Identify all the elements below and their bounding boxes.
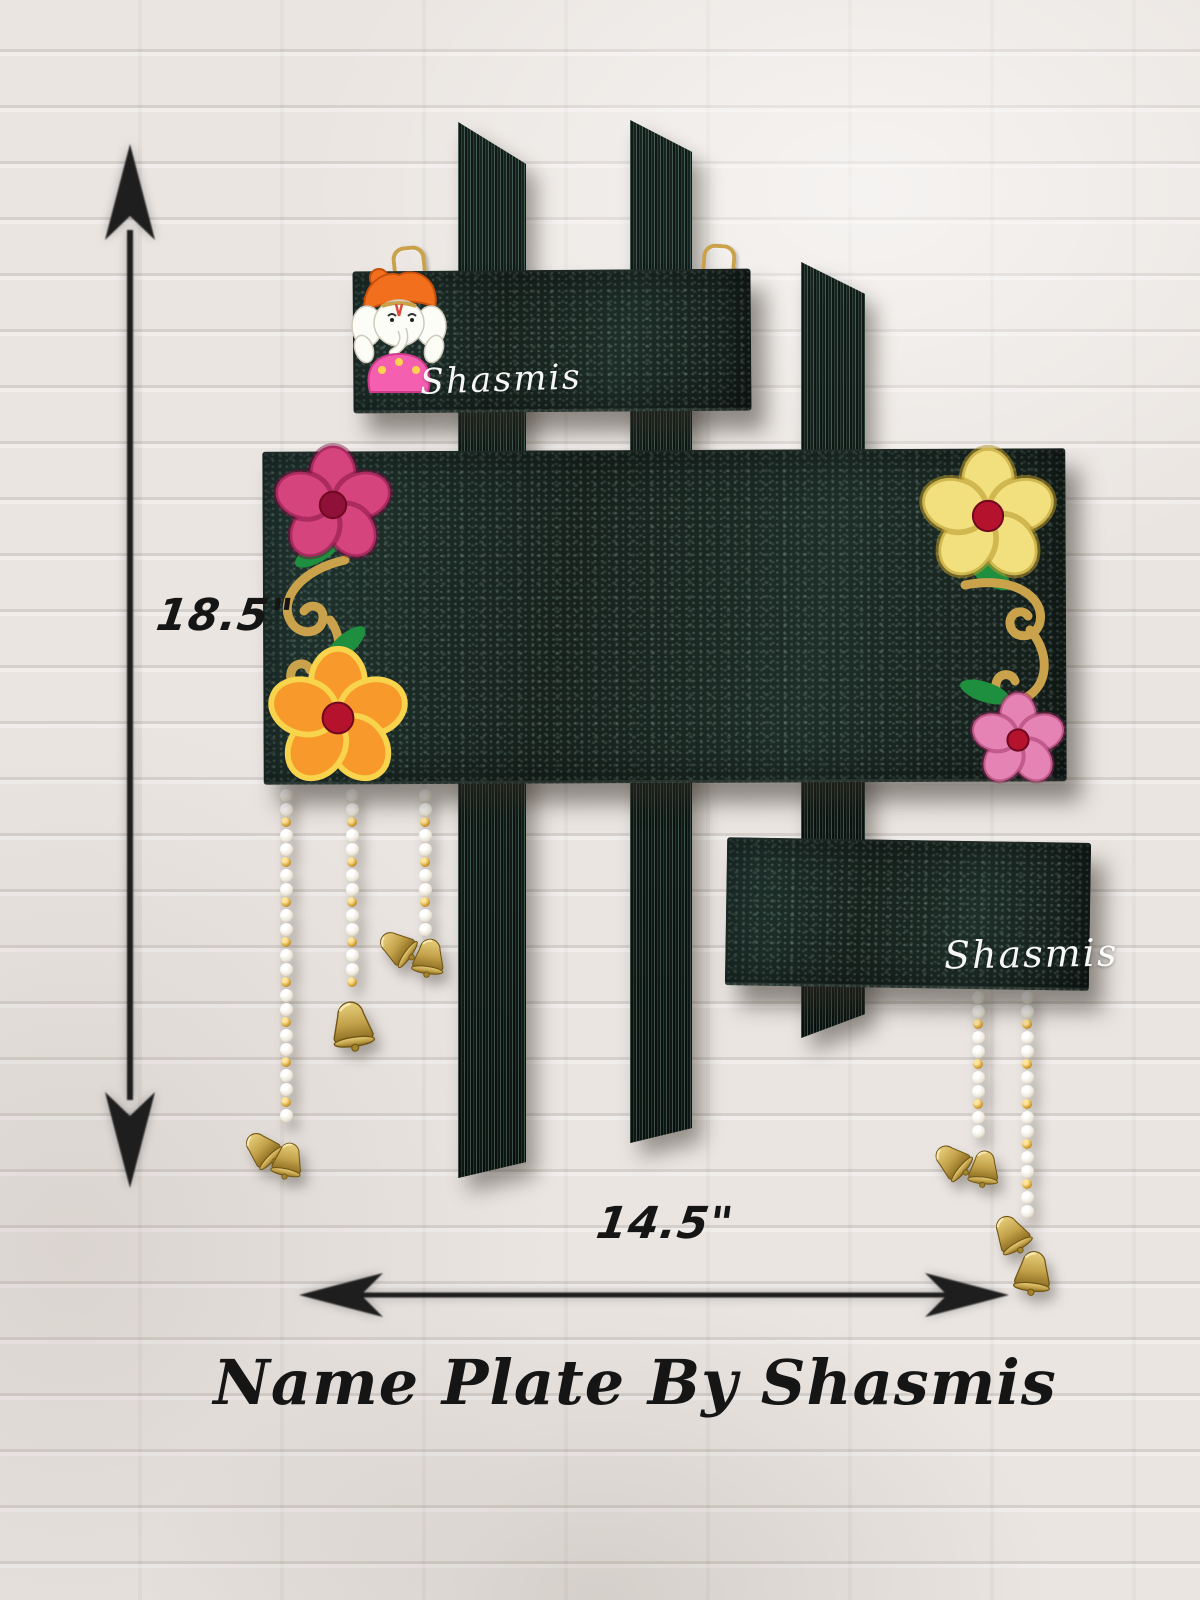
pearl-bead [346, 963, 359, 976]
pearl-bead [1021, 1005, 1034, 1018]
pearl-bead [280, 909, 293, 922]
pearl-bead [972, 1085, 985, 1098]
pearl-bead [346, 883, 359, 896]
pearl-bead [280, 803, 293, 816]
pearl-bead [1021, 1125, 1034, 1138]
gold-bead [281, 937, 291, 947]
brand-watermark: Shasmis [944, 930, 1119, 977]
pearl-bead [346, 829, 359, 842]
pearl-bead [419, 829, 432, 842]
product-title: Name Plate By Shasmis [120, 1346, 1150, 1419]
height-dimension-label: 18.5" [136, 590, 313, 641]
pearl-bead [1021, 1151, 1034, 1164]
gold-bead [347, 897, 357, 907]
pearl-bead [280, 869, 293, 882]
gold-bead [420, 857, 430, 867]
gold-bead [281, 857, 291, 867]
pearl-bead-string [418, 788, 432, 1006]
pearl-bead [346, 789, 359, 802]
gold-bead [281, 977, 291, 987]
pearl-bead [280, 1003, 293, 1016]
pearl-bead [280, 1069, 293, 1082]
gold-bead [973, 1059, 983, 1069]
gold-bead [347, 817, 357, 827]
pearl-bead [972, 1045, 985, 1058]
width-dimension-label: 14.5" [556, 1198, 773, 1249]
gold-bead [1022, 1139, 1032, 1149]
pearl-bead [972, 1005, 985, 1018]
pearl-bead [419, 909, 432, 922]
pearl-bead [346, 843, 359, 856]
gold-bead [973, 1099, 983, 1109]
pearl-bead [1021, 1191, 1034, 1204]
gold-bead [347, 857, 357, 867]
pearl-bead [1021, 1071, 1034, 1084]
gold-bead [281, 1097, 291, 1107]
pearl-bead [346, 803, 359, 816]
pearl-bead [280, 829, 293, 842]
pearl-bead [1021, 1111, 1034, 1124]
brass-bell-icon [405, 933, 452, 980]
pearl-bead-string [971, 990, 985, 1210]
pearl-bead [972, 1125, 985, 1138]
pearl-bead [1021, 1045, 1034, 1058]
pearl-bead-string [345, 788, 359, 1066]
pearl-bead [972, 1031, 985, 1044]
pearl-bead [280, 1109, 293, 1122]
gold-bead [347, 937, 357, 947]
product-photo: Shasmis Shasmis 18.5" 14.5" Name Plate B… [0, 0, 1200, 1600]
gold-bead [1022, 1179, 1032, 1189]
gold-bead [347, 977, 357, 987]
pearl-bead [972, 991, 985, 1004]
main-name-plank [262, 448, 1066, 785]
pearl-bead [419, 789, 432, 802]
pearl-bead [1021, 1085, 1034, 1098]
gold-bead [973, 1019, 983, 1029]
vertical-dimension-arrow [92, 138, 176, 1194]
pearl-bead [419, 843, 432, 856]
pearl-bead [972, 1111, 985, 1124]
pearl-bead [280, 963, 293, 976]
gold-bead [281, 1017, 291, 1027]
pearl-bead [280, 1083, 293, 1096]
pearl-bead [280, 1029, 293, 1042]
pearl-bead [972, 1071, 985, 1084]
gold-bead [420, 897, 430, 907]
gold-bead [1022, 1099, 1032, 1109]
pearl-bead [280, 789, 293, 802]
pearl-bead [280, 923, 293, 936]
brass-bell-icon [962, 1146, 1006, 1190]
pearl-bead [419, 869, 432, 882]
gold-bead [1022, 1059, 1032, 1069]
pearl-bead [280, 883, 293, 896]
pearl-bead [419, 923, 432, 936]
brass-bell-icon [264, 1136, 311, 1183]
gold-bead [420, 817, 430, 827]
pearl-bead [419, 883, 432, 896]
pearl-bead [1021, 1031, 1034, 1044]
pearl-bead [280, 1043, 293, 1056]
pearl-bead [419, 803, 432, 816]
pearl-bead [280, 949, 293, 962]
pearl-bead [346, 869, 359, 882]
gold-bead [281, 1057, 291, 1067]
pearl-bead [346, 909, 359, 922]
gold-bead [281, 817, 291, 827]
pearl-bead [280, 989, 293, 1002]
pearl-bead-string [1020, 990, 1034, 1284]
gold-bead [1022, 1019, 1032, 1029]
brand-watermark: Shasmis [419, 357, 582, 403]
brass-bell-icon [322, 995, 383, 1056]
pearl-bead [346, 949, 359, 962]
pearl-bead [1021, 991, 1034, 1004]
pearl-bead [280, 843, 293, 856]
pearl-bead-string [279, 788, 293, 1190]
gold-bead [281, 897, 291, 907]
horizontal-dimension-arrow [283, 1262, 1025, 1328]
pearl-bead [1021, 1165, 1034, 1178]
pearl-bead [346, 923, 359, 936]
